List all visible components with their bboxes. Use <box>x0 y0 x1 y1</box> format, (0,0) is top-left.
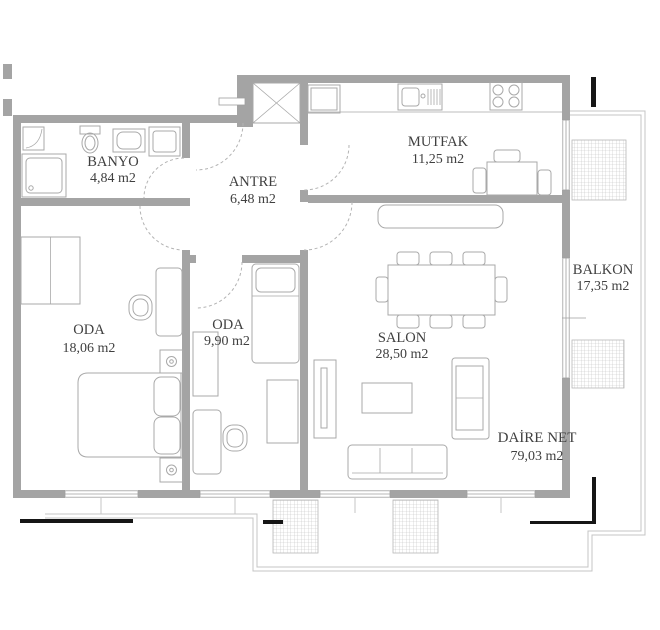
room-area-oda-large: 18,06 m2 <box>63 341 116 356</box>
entry-door-arc <box>196 123 243 170</box>
room-label-oda-small: ODA <box>212 317 244 333</box>
bedroom-small-furniture <box>193 264 299 474</box>
room-area-mutfak: 11,25 m2 <box>412 152 464 167</box>
sofa <box>348 445 447 479</box>
room-label-oda-large: ODA <box>73 322 105 338</box>
floor-plan-page: BANYO 4,84 m2 ANTRE 6,48 m2 MUTFAK 11,25… <box>0 0 660 625</box>
living-room-door-arc <box>304 202 352 250</box>
bedroom-large-furniture <box>21 237 183 482</box>
room-large-door-arc <box>140 206 182 250</box>
desk <box>156 268 182 336</box>
room-label-antre: ANTRE <box>229 174 277 190</box>
bathroom-door-arc <box>144 158 184 198</box>
walls <box>3 64 570 498</box>
kitchen-sink <box>398 84 442 110</box>
desk <box>193 410 221 474</box>
dining-table <box>376 252 507 328</box>
wardrobe <box>21 237 80 304</box>
room-label-banyo: BANYO <box>87 154 139 170</box>
dresser <box>267 380 298 443</box>
bathroom-sink <box>113 129 145 152</box>
room-label-balkon: BALKON <box>573 262 634 278</box>
nightstand <box>160 350 183 373</box>
stove <box>490 82 522 110</box>
washing-machine <box>149 127 180 156</box>
fridge <box>308 85 340 113</box>
kitchen-table <box>473 150 551 195</box>
nightstand <box>160 458 183 482</box>
room-area-salon: 28,50 m2 <box>376 347 429 362</box>
door-arcs <box>140 123 352 308</box>
desk-chair <box>129 295 152 320</box>
net-area-value: 79,03 m2 <box>511 449 564 464</box>
toilet <box>80 126 100 153</box>
room-label-mutfak: MUTFAK <box>408 134 469 150</box>
desk-chair <box>223 425 247 451</box>
sideboard <box>378 205 503 228</box>
net-area-label: DAİRE NET <box>498 430 577 446</box>
room-area-banyo: 4,84 m2 <box>90 171 136 186</box>
shaft <box>253 83 300 123</box>
double-bed <box>78 373 181 457</box>
kitchen-door-arc <box>304 145 349 190</box>
floor-plan-canvas: BANYO 4,84 m2 ANTRE 6,48 m2 MUTFAK 11,25… <box>0 0 660 625</box>
room-labels: BANYO 4,84 m2 ANTRE 6,48 m2 MUTFAK 11,25… <box>63 134 634 464</box>
coffee-table <box>362 383 412 413</box>
loveseat <box>452 358 489 439</box>
room-area-antre: 6,48 m2 <box>230 192 276 207</box>
shower-tray <box>22 154 66 197</box>
room-area-oda-small: 9,90 m2 <box>204 334 250 349</box>
single-bed <box>252 264 299 363</box>
room-small-door-arc <box>196 262 242 308</box>
room-area-balkon: 17,35 m2 <box>577 279 630 294</box>
room-label-salon: SALON <box>378 330 427 346</box>
corner-cabinet <box>23 127 44 150</box>
tv-unit <box>314 360 336 438</box>
